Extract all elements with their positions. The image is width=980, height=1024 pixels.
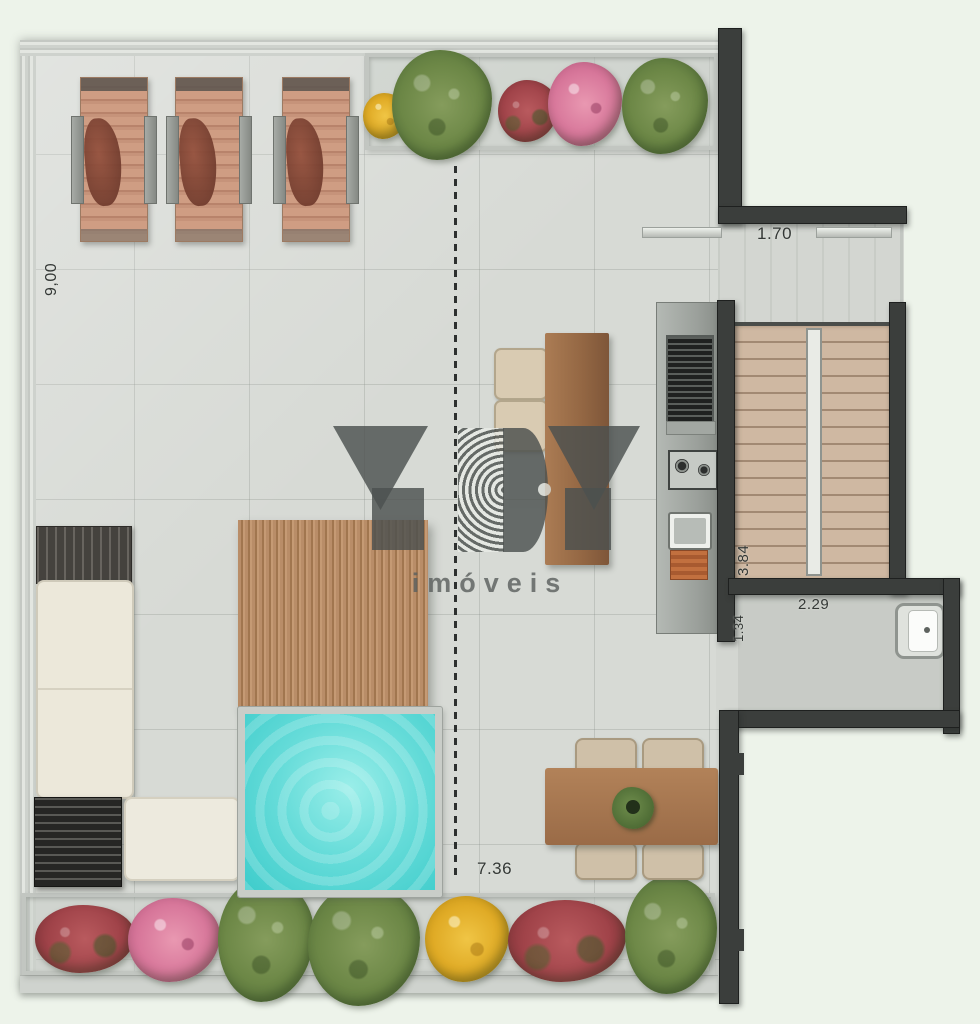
dimension-bottom-width: 7.36 — [477, 860, 512, 877]
lounger-towel — [176, 117, 220, 208]
dark-bench — [36, 526, 132, 584]
wall-stairs-right — [889, 302, 906, 594]
lounger-armrest-left — [166, 116, 179, 204]
swimming-pool — [238, 707, 442, 897]
lounger-armrest-right — [144, 116, 157, 204]
bar-stool-1 — [494, 348, 548, 400]
grill-oven-base — [666, 421, 716, 435]
dimension-stairs-depth: 3.84 — [736, 514, 751, 576]
lounger-towel — [283, 117, 327, 208]
outdoor-sofa — [36, 580, 134, 799]
table-centerpiece-plant — [612, 787, 654, 829]
wall-terrace-lower-right — [719, 710, 739, 1004]
ottoman — [124, 797, 240, 881]
watermark-letter-b-rings — [458, 428, 504, 552]
doorway-floor — [716, 640, 738, 712]
sliding-door-track-right — [816, 227, 892, 238]
wall-top-right-vertical — [718, 28, 742, 224]
sun-lounger-3 — [282, 77, 350, 242]
watermark-letter-y-right-stem — [565, 488, 611, 550]
bathroom-sink — [895, 603, 945, 659]
sun-lounger-1 — [80, 77, 148, 242]
dimension-left-side: 9,00 — [44, 238, 60, 296]
sliding-door-track-left — [642, 227, 722, 238]
kitchen-towel — [670, 550, 708, 580]
kitchen-sink — [668, 512, 712, 550]
lounger-towel — [81, 117, 125, 208]
dining-chair-3 — [575, 842, 637, 880]
barbecue-grill — [34, 797, 122, 887]
lounger-armrest-left — [71, 116, 84, 204]
rooftop-floor-plan: 9,00 1.70 3.84 1.34 2.29 7.36 imóveis — [0, 0, 980, 1024]
lounger-armrest-right — [239, 116, 252, 204]
dimension-upper-opening: 1.70 — [757, 225, 792, 242]
lounger-armrest-left — [273, 116, 286, 204]
wall-top-right-horizontal — [718, 206, 907, 224]
stair-handrail — [806, 328, 822, 576]
sun-lounger-2 — [175, 77, 243, 242]
watermark-brand-subtitle: imóveis — [400, 568, 580, 599]
center-axis-dashed-line — [454, 166, 457, 878]
dining-chair-4 — [642, 842, 704, 880]
dimension-bathroom-depth: 1.34 — [732, 596, 745, 642]
grill-oven — [666, 335, 714, 423]
wall-bathroom-bottom — [724, 710, 960, 728]
watermark-letter-y-left-stem — [372, 488, 424, 550]
wall-bathroom-top — [728, 578, 960, 595]
lounger-armrest-right — [346, 116, 359, 204]
cooktop — [668, 450, 718, 490]
dimension-bathroom-width: 2.29 — [798, 597, 829, 612]
